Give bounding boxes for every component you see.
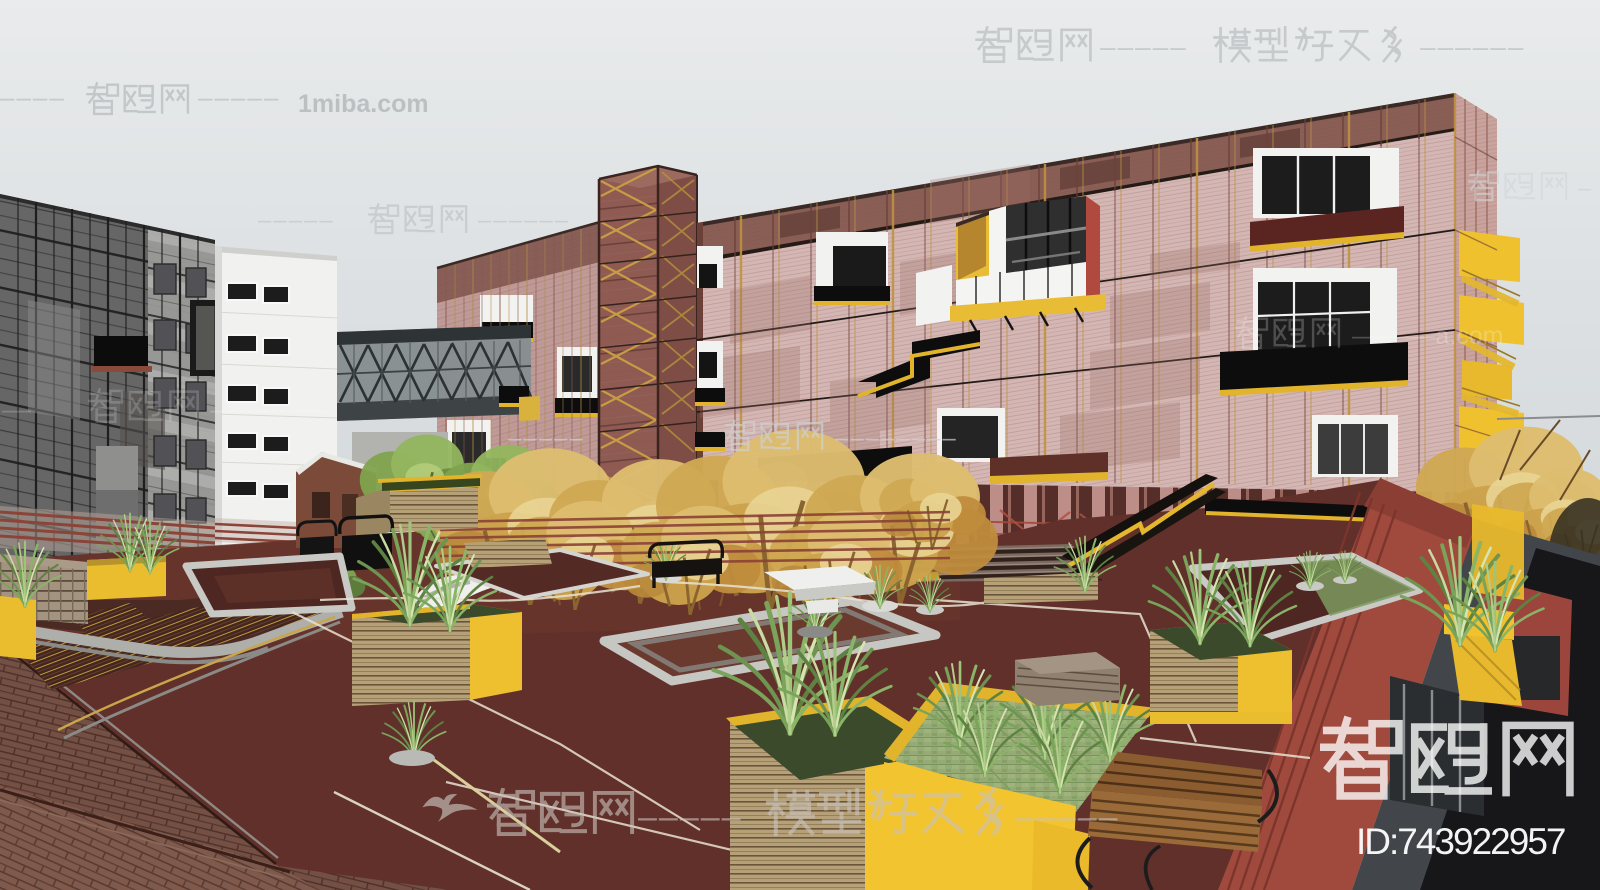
svg-text:–: – [1578,175,1592,202]
svg-text:–––––: ––––– [1100,31,1188,62]
svg-text:–––––: ––––– [1015,798,1120,836]
svg-text:–––––: ––––– [508,425,585,452]
svg-text:––––: –––– [0,82,66,112]
svg-text:–––––: ––––– [198,82,280,112]
svg-text:ID:743922957: ID:743922957 [1356,821,1565,862]
svg-text:–––––: ––––– [258,207,335,234]
svg-text:––––––: –––––– [478,207,570,234]
svg-text:––––––a.com: ––––––a.com [1352,322,1504,350]
svg-text:––: –– [2,394,31,424]
svg-text:–––––: ––––– [638,798,743,836]
svg-text:1miba.com: 1miba.com [298,90,429,118]
svg-text:––––––: –––––– [1420,31,1525,62]
svg-text:––––––––: –––––––– [210,394,326,424]
svg-text:––––––––: –––––––– [835,425,958,452]
